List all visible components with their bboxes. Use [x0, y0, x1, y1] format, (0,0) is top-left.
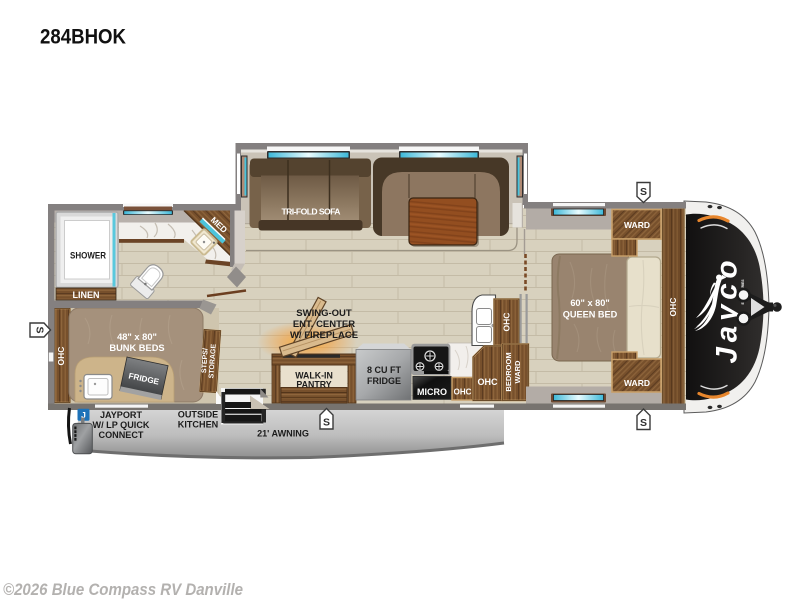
- svg-text:WARD: WARD: [624, 220, 650, 230]
- svg-text:ENT. CENTER: ENT. CENTER: [293, 319, 355, 330]
- svg-text:FRIDGE: FRIDGE: [367, 376, 401, 386]
- svg-text:LINEN: LINEN: [73, 290, 100, 300]
- svg-text:284BHOK: 284BHOK: [40, 26, 126, 49]
- svg-text:OHC: OHC: [478, 377, 499, 387]
- svg-text:W/ FIREPLACE: W/ FIREPLACE: [290, 330, 358, 341]
- svg-text:S: S: [640, 186, 647, 198]
- svg-text:JAYPORT: JAYPORT: [100, 410, 143, 420]
- svg-text:KITCHEN: KITCHEN: [178, 420, 218, 430]
- svg-text:S: S: [323, 417, 330, 429]
- svg-text:WARD: WARD: [513, 360, 522, 383]
- svg-text:MICRO: MICRO: [417, 387, 447, 397]
- svg-text:21' AWNING: 21' AWNING: [257, 429, 309, 439]
- svg-text:OHC: OHC: [454, 388, 472, 397]
- svg-text:48" x 80": 48" x 80": [117, 332, 157, 342]
- svg-text:PANTRY: PANTRY: [296, 379, 331, 389]
- svg-text:OHC: OHC: [56, 347, 66, 366]
- svg-text:©2026 Blue Compass RV Danville: ©2026 Blue Compass RV Danville: [3, 581, 243, 599]
- svg-text:Jayco: Jayco: [711, 261, 744, 364]
- svg-text:OHC: OHC: [668, 298, 678, 317]
- svg-text:BUNK BEDS: BUNK BEDS: [109, 343, 164, 353]
- svg-text:S: S: [640, 417, 647, 429]
- svg-text:60" x 80": 60" x 80": [570, 298, 609, 308]
- svg-text:SHOWER: SHOWER: [70, 251, 106, 261]
- svg-text:8 CU FT: 8 CU FT: [367, 365, 402, 375]
- svg-text:CONNECT: CONNECT: [99, 430, 144, 440]
- svg-text:TRI-FOLD SOFA: TRI-FOLD SOFA: [282, 207, 341, 217]
- svg-text:OHC: OHC: [502, 313, 512, 332]
- svg-text:WARD: WARD: [624, 378, 650, 388]
- svg-text:OUTSIDE: OUTSIDE: [178, 410, 218, 420]
- svg-text:SWING-OUT: SWING-OUT: [296, 308, 352, 319]
- svg-text:QUEEN BED: QUEEN BED: [563, 310, 618, 320]
- svg-text:S: S: [34, 326, 46, 333]
- svg-text:BEDROOM: BEDROOM: [504, 352, 513, 391]
- svg-text:W/ LP QUICK: W/ LP QUICK: [93, 420, 150, 430]
